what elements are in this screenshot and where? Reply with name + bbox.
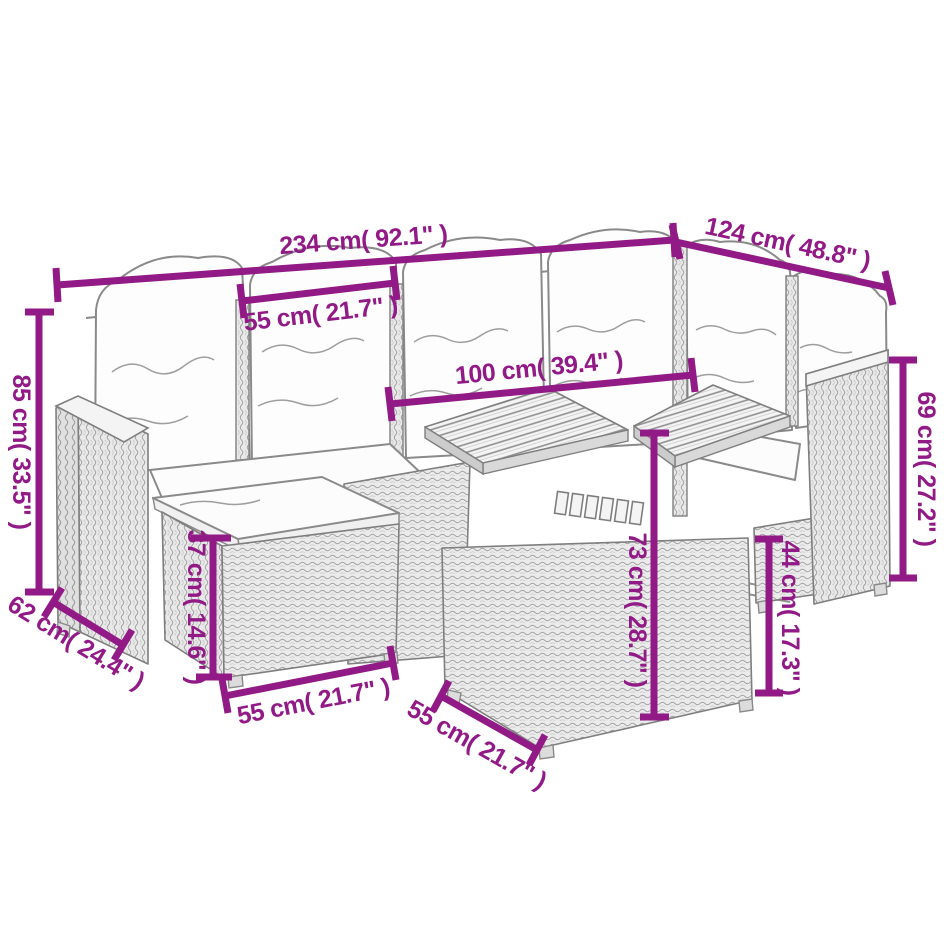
dimension-label: 44 cm( 17.3" ) [776, 541, 804, 696]
back-pillow [250, 246, 400, 468]
table-band [555, 491, 644, 524]
sofa-set-illustration [56, 229, 890, 759]
dimension-armrest-height: 69 cm( 27.2" ) [889, 360, 940, 578]
table-base-block [442, 538, 752, 748]
product-dimension-diagram: 234 cm( 92.1" ) 124 cm( 48.8" ) 85 cm( 3… [0, 0, 947, 947]
dimension-label: 73 cm( 28.7" ) [623, 533, 651, 688]
dimension-label: 37 cm( 14.6" ) [182, 530, 210, 685]
dimension-label: 69 cm( 27.2" ) [912, 392, 940, 547]
dimension-back-height: 85 cm( 33.5" ) [7, 312, 54, 592]
right-armrest [806, 350, 890, 604]
footstool-base-front [222, 524, 399, 678]
dimension-label: 85 cm( 33.5" ) [7, 375, 35, 530]
